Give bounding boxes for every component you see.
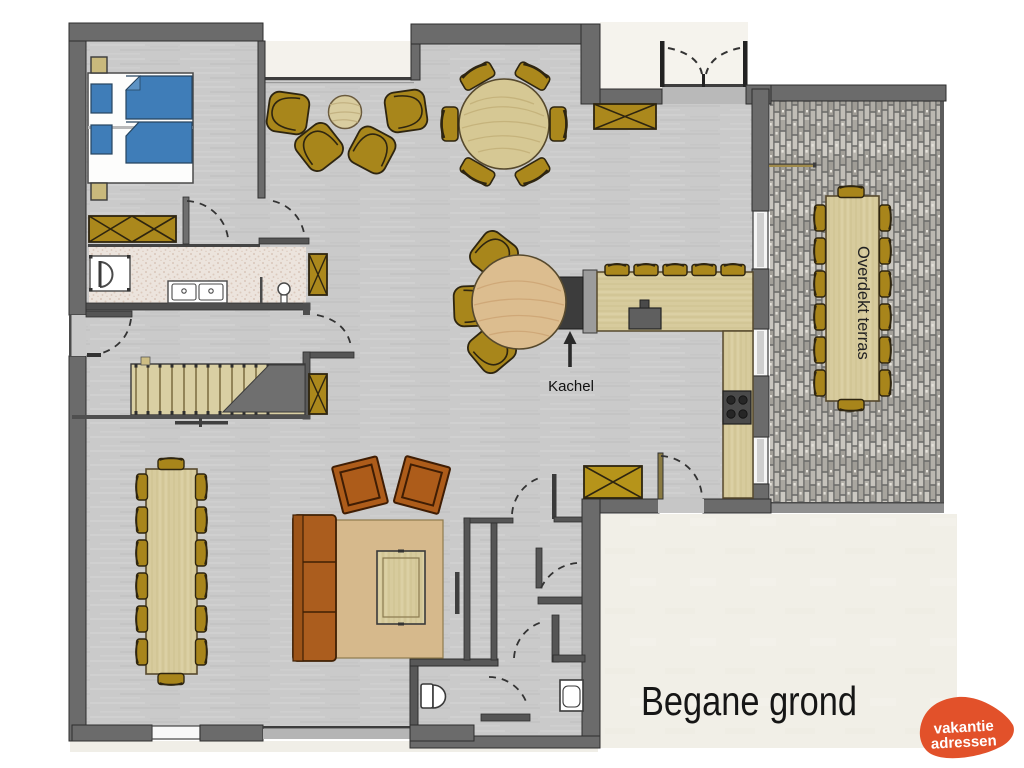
svg-text:Kachel: Kachel bbox=[548, 378, 594, 395]
svg-text:adressen: adressen bbox=[930, 732, 997, 752]
svg-text:Overdekt terras: Overdekt terras bbox=[854, 246, 872, 360]
svg-text:Begane grond: Begane grond bbox=[641, 678, 857, 724]
